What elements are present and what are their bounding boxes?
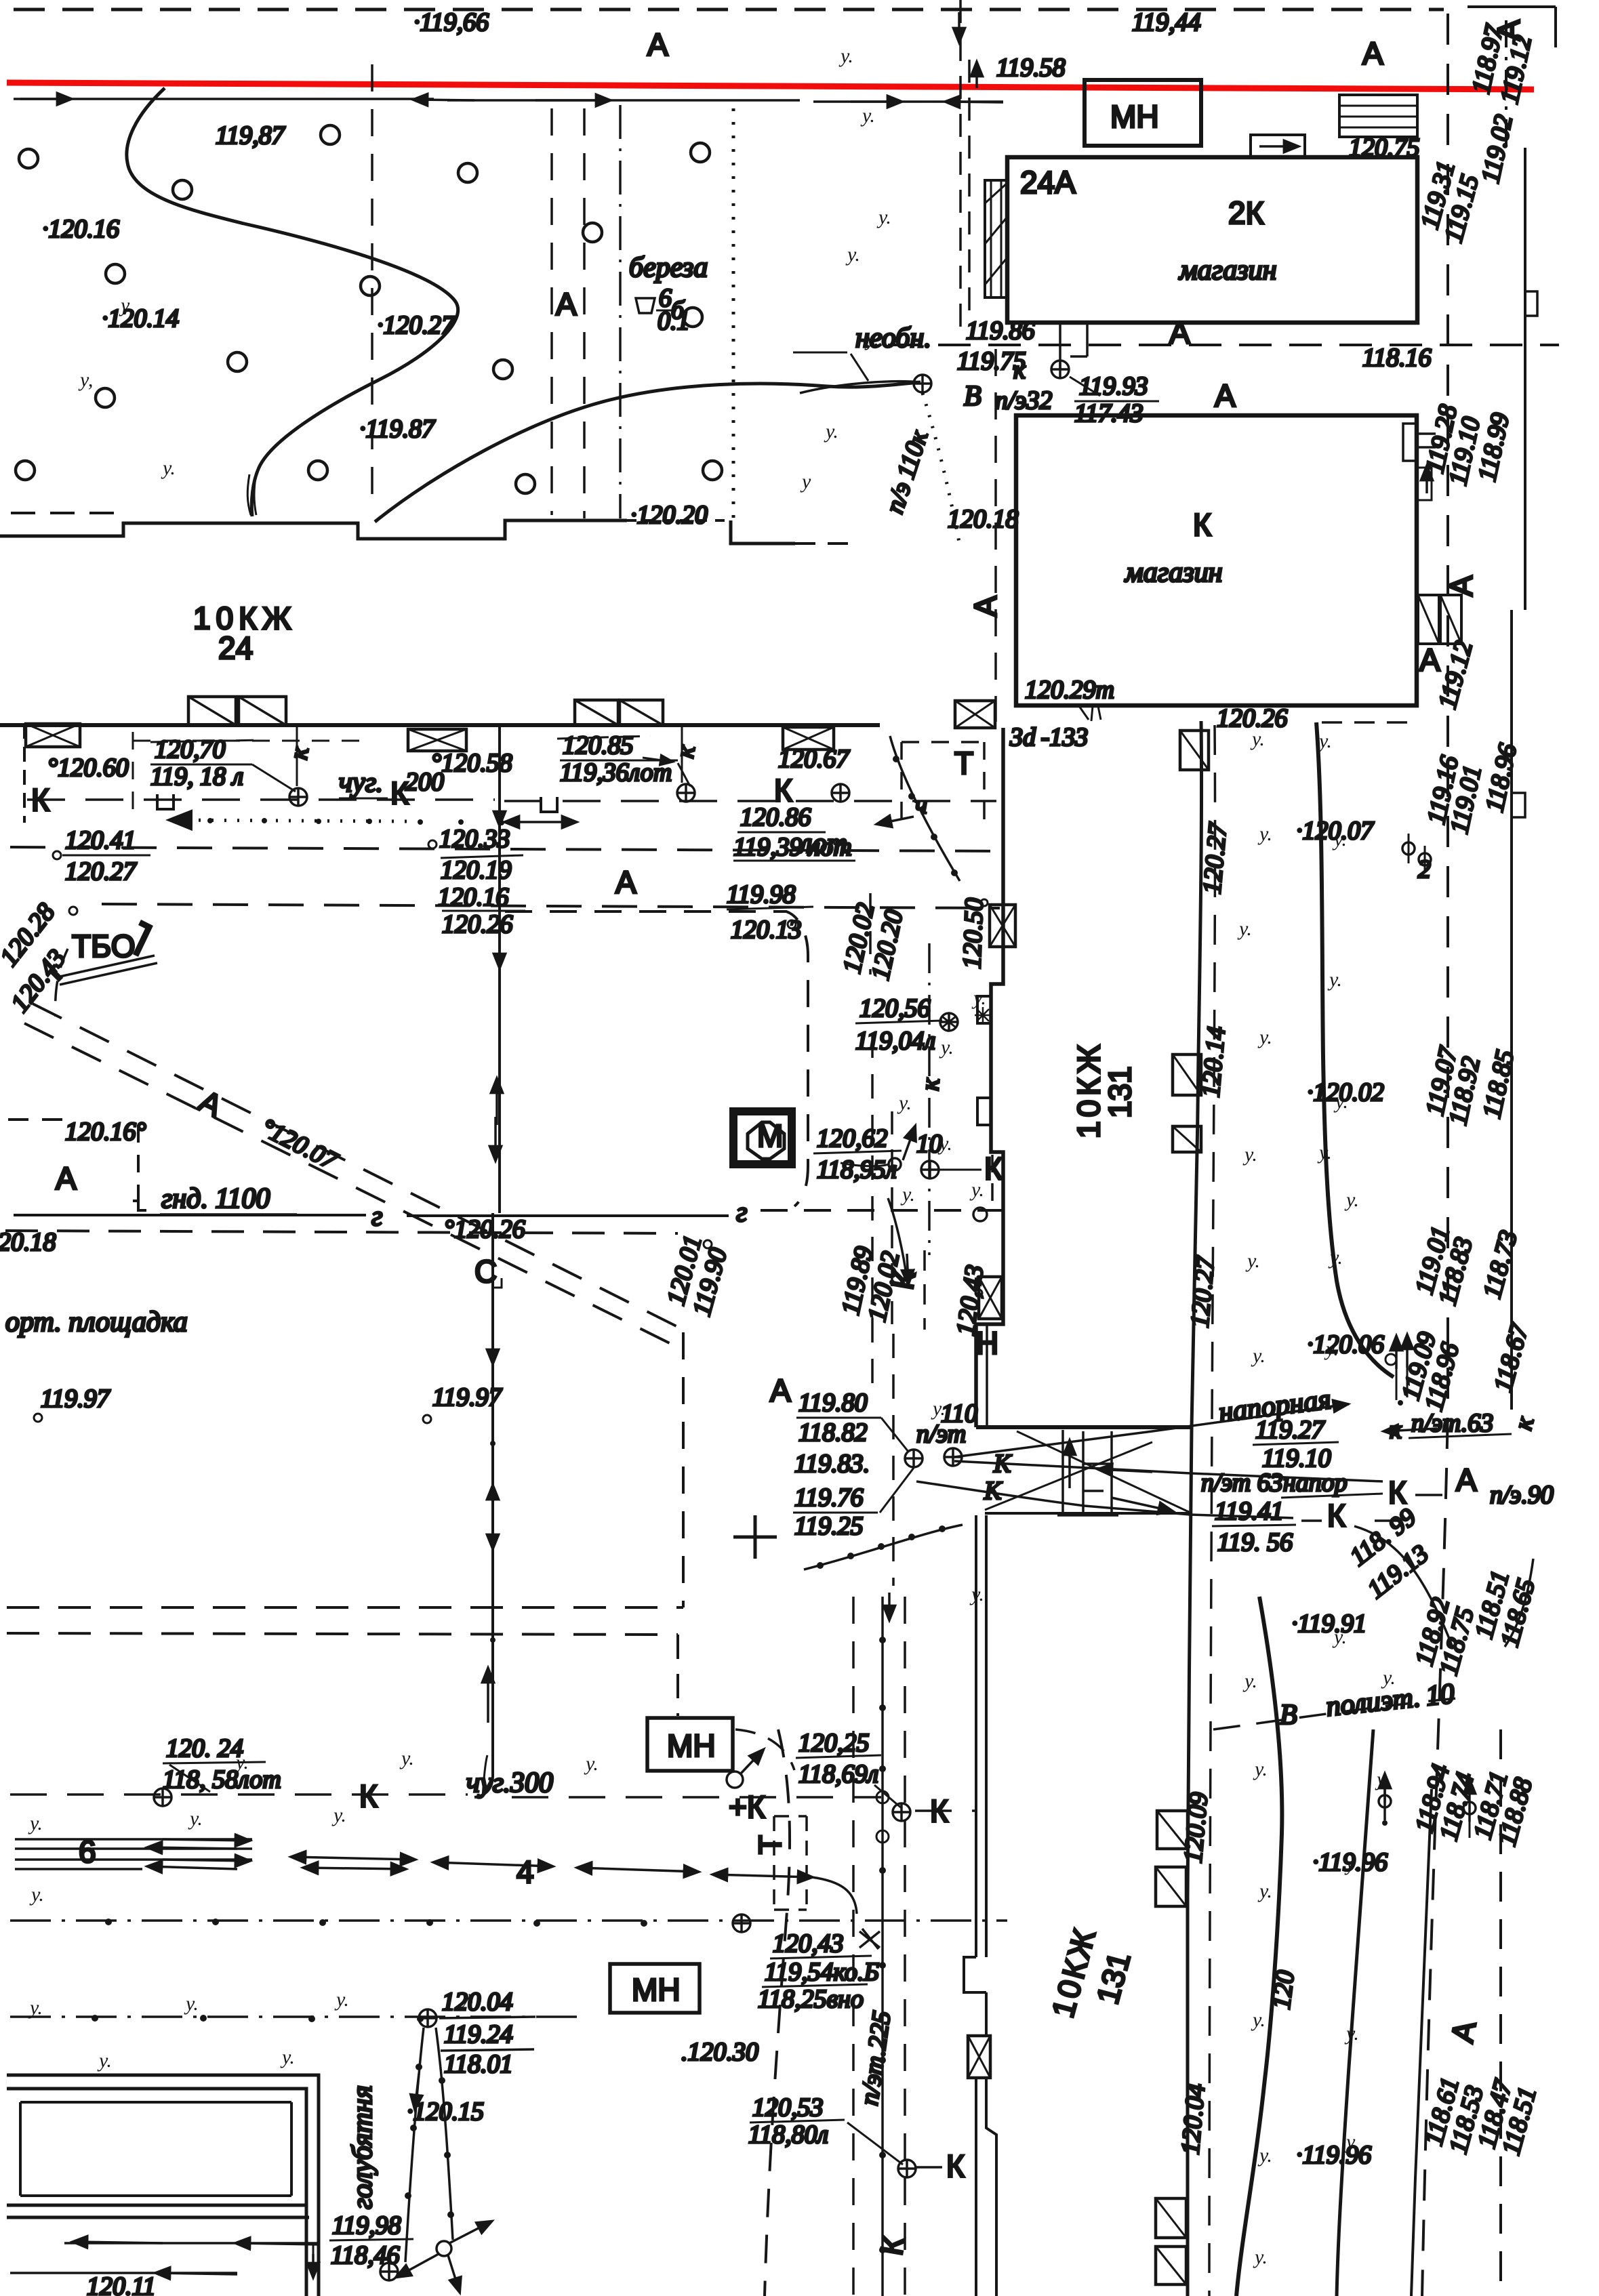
svg-text:магазин: магазин (1178, 255, 1276, 286)
svg-text:119,98: 119,98 (332, 2211, 401, 2240)
svg-text:у.: у. (1333, 1090, 1348, 1113)
svg-text:у.: у. (1257, 1880, 1272, 1902)
svg-text:у.: у. (969, 1583, 984, 1605)
svg-text:120.18: 120.18 (948, 505, 1019, 533)
svg-text:у.: у. (1257, 1026, 1272, 1048)
svg-text:у.: у. (331, 1804, 346, 1826)
svg-text:119.98: 119.98 (727, 880, 796, 909)
svg-text:у.: у. (860, 104, 875, 127)
svg-text:г: г (736, 1197, 747, 1228)
svg-text:у.: у. (864, 328, 879, 350)
svg-text:у.: у. (1242, 1670, 1257, 1692)
svg-text:120.41: 120.41 (65, 826, 136, 855)
svg-text:лот: лот (798, 828, 847, 859)
svg-text:МН: МН (667, 1728, 716, 1763)
svg-text:К: К (390, 775, 409, 811)
svg-text:к: к (1013, 356, 1026, 384)
svg-text:орт. площадка: орт. площадка (5, 1307, 188, 1338)
svg-text:118,95л: 118,95л (817, 1155, 897, 1184)
svg-text:2К: 2К (1228, 195, 1264, 230)
svg-text:у.: у. (845, 243, 860, 266)
svg-text:у.: у. (1381, 1666, 1396, 1689)
svg-text:131: 131 (1102, 1066, 1137, 1118)
svg-text:ТБО: ТБО (72, 928, 136, 964)
svg-text:у.: у. (939, 1036, 954, 1059)
svg-text:у.: у. (937, 1132, 952, 1155)
svg-text:120.67: 120.67 (778, 745, 851, 773)
svg-text:К: К (984, 1477, 1003, 1505)
svg-text:К: К (993, 1450, 1012, 1478)
svg-text:120.04: 120.04 (442, 1988, 513, 2016)
svg-text:120,70: 120,70 (155, 735, 226, 764)
svg-text:120.11: 120.11 (87, 2272, 156, 2296)
svg-text:магазин: магазин (1124, 557, 1222, 588)
svg-text:у.: у. (188, 1807, 203, 1830)
svg-text:К: К (359, 1778, 378, 1813)
svg-text:у.: у. (1237, 918, 1252, 940)
svg-text:110: 110 (941, 1399, 977, 1428)
svg-text:п/эт 63напор: п/эт 63напор (1201, 1469, 1348, 1497)
svg-text:·120.16: ·120.16 (42, 215, 119, 243)
svg-text:·119.96: ·119.96 (1296, 2141, 1371, 2169)
svg-text:голубятня: голубятня (347, 2085, 378, 2209)
svg-text:С: С (474, 1254, 497, 1289)
svg-text:К: К (946, 2148, 965, 2184)
svg-text:А: А (1491, 20, 1526, 41)
svg-text:у.: у. (460, 1986, 474, 2008)
svg-text:у.: у. (584, 1752, 599, 1775)
svg-text:118,25вно: 118,25вно (758, 1985, 864, 2013)
svg-text:А: А (56, 1161, 77, 1196)
svg-text:120.19: 120.19 (441, 856, 512, 884)
svg-text:у.: у. (897, 1092, 912, 1114)
svg-text:119.27: 119.27 (1255, 1416, 1326, 1444)
svg-text:120.16: 120.16 (438, 883, 509, 911)
svg-text:у.: у. (1344, 1853, 1359, 1875)
svg-text:120.18: 120.18 (0, 1228, 56, 1256)
svg-text:чуг.300: чуг.300 (466, 1767, 553, 1799)
svg-text:119.24: 119.24 (444, 2020, 513, 2049)
svg-text:М: М (757, 1118, 783, 1153)
svg-text:у.: у. (838, 45, 853, 67)
svg-text:г: г (371, 1201, 382, 1232)
svg-text:119. 56: 119. 56 (1217, 1528, 1293, 1557)
svg-text:119.76: 119.76 (794, 1483, 864, 1512)
svg-text:у.: у. (1324, 1338, 1339, 1360)
svg-text:·120.14: ·120.14 (102, 304, 179, 333)
svg-text:у: у (800, 470, 811, 493)
svg-text:у.: у. (1344, 1189, 1359, 1211)
svg-text:119,44: 119,44 (1132, 8, 1201, 37)
svg-text:у.: у. (334, 1988, 349, 2011)
svg-text:МН: МН (632, 1972, 681, 2007)
svg-text:у.: у. (1375, 1768, 1390, 1790)
svg-text:у.: у. (1344, 2131, 1359, 2153)
svg-text:118.16: 118.16 (1362, 344, 1432, 372)
svg-text:Т: Т (752, 1835, 788, 1854)
svg-text:у.: у. (1257, 2144, 1272, 2167)
svg-text:у.: у. (1251, 1345, 1266, 1367)
svg-text:.120.30: .120.30 (681, 2038, 758, 2066)
svg-text:у.: у. (29, 1883, 44, 1906)
svg-text:119,54ко.Б: 119,54ко.Б (765, 1958, 879, 1986)
svg-text:6: 6 (79, 1834, 96, 1869)
svg-text:120.33: 120.33 (439, 825, 510, 853)
svg-text:МН: МН (1110, 99, 1159, 134)
svg-text:А: А (615, 865, 636, 900)
svg-text:у.: у. (399, 1747, 414, 1769)
svg-text:А: А (1444, 575, 1479, 596)
svg-text:у.: у. (1317, 1141, 1332, 1164)
svg-text:·120.20: ·120.20 (630, 501, 708, 529)
svg-text:А: А (1169, 315, 1190, 350)
svg-text:К: К (1327, 1498, 1345, 1533)
svg-text:у.: у. (824, 420, 838, 443)
svg-text:В: В (1280, 1700, 1297, 1731)
svg-text:у.: у. (28, 1996, 43, 2019)
svg-text:2: 2 (1418, 855, 1431, 884)
svg-text:К: К (31, 782, 49, 817)
svg-text:А: А (556, 287, 577, 322)
svg-text:у.: у. (1253, 2246, 1268, 2268)
svg-text:А: А (1456, 1462, 1477, 1498)
svg-text:118, 58лот: 118, 58лот (163, 1765, 281, 1794)
svg-text:п/эт.63: п/эт.63 (1411, 1409, 1493, 1437)
svg-text:·119.87: ·119.87 (359, 415, 436, 443)
svg-text:°120.60: °120.60 (47, 754, 129, 782)
svg-text:4: 4 (517, 1854, 534, 1889)
svg-text:119,87: 119,87 (216, 121, 286, 150)
svg-text:у.: у. (1245, 1250, 1260, 1272)
svg-text:24А: 24А (1020, 165, 1076, 200)
svg-text:к: к (1390, 1416, 1402, 1444)
svg-text:120,43: 120,43 (773, 1929, 844, 1958)
svg-text:п/э32: п/э32 (995, 386, 1052, 415)
svg-text:гнд. 1100: гнд. 1100 (161, 1183, 270, 1214)
svg-text:у.: у. (97, 2049, 112, 2072)
svg-text:у.: у. (28, 1812, 43, 1834)
svg-text:у.: у. (1327, 968, 1342, 991)
svg-text:у.: у. (119, 294, 134, 316)
svg-text:у.: у. (1317, 730, 1332, 752)
svg-text:К: К (1193, 507, 1211, 542)
svg-text:120.86: 120.86 (740, 803, 811, 832)
svg-text:у.: у. (161, 457, 176, 479)
svg-text:у.: у. (184, 1992, 199, 2015)
svg-text:у.: у. (971, 987, 986, 1009)
svg-text:б: б (671, 296, 685, 325)
svg-text:120.50: 120.50 (958, 897, 989, 969)
svg-text:у.: у. (1328, 1246, 1343, 1269)
svg-text:у.: у. (876, 206, 891, 228)
svg-text:24: 24 (218, 630, 253, 665)
svg-text:у.: у. (234, 1751, 249, 1774)
svg-text:119.97: 119.97 (41, 1385, 111, 1413)
svg-text:у.: у. (900, 1183, 915, 1206)
svg-text:119.41: 119.41 (1215, 1497, 1284, 1525)
svg-text:118.82: 118.82 (798, 1418, 868, 1447)
svg-text:120.29т: 120.29т (1025, 676, 1114, 704)
svg-text:п/э.90: п/э.90 (1490, 1481, 1554, 1509)
svg-text:+К: +К (729, 1789, 765, 1824)
svg-text:120.16°: 120.16° (65, 1118, 146, 1146)
svg-text:°120.26: °120.26 (444, 1215, 525, 1244)
svg-text:у.: у. (1250, 728, 1265, 750)
svg-text:у.: у. (931, 1397, 946, 1420)
svg-text:чуг.: чуг. (339, 767, 383, 798)
svg-text:у.: у. (1251, 2009, 1266, 2031)
svg-text:118,69л: 118,69л (798, 1760, 878, 1788)
svg-text:А: А (1215, 378, 1236, 413)
svg-text:береза: береза (629, 252, 708, 283)
svg-text:119.83.: 119.83. (794, 1450, 870, 1478)
svg-text:119.93: 119.93 (1079, 372, 1148, 401)
svg-text:120.27: 120.27 (65, 857, 138, 886)
svg-text:119.58: 119.58 (996, 54, 1066, 82)
svg-text:120,56: 120,56 (859, 994, 931, 1023)
svg-text:у,: у, (78, 369, 93, 391)
svg-text:120. 24: 120. 24 (166, 1734, 243, 1763)
svg-text:А: А (770, 1373, 791, 1408)
svg-text:119, 18 л: 119, 18 л (150, 762, 243, 791)
svg-text:·119.91: ·119.91 (1291, 1610, 1367, 1638)
svg-text:10КЖ: 10КЖ (1071, 1041, 1106, 1139)
svg-text:у.: у. (280, 2046, 295, 2068)
svg-text:119,36лот: 119,36лот (560, 758, 672, 787)
svg-text:118,80л: 118,80л (748, 2120, 828, 2149)
svg-text:у.: у. (1344, 2022, 1359, 2045)
svg-text:·120.06: ·120.06 (1307, 1330, 1384, 1359)
svg-text:у.: у. (1257, 823, 1272, 845)
svg-text:А: А (1419, 642, 1440, 678)
svg-text:Н: Н (976, 1326, 998, 1361)
svg-text:·119,66: ·119,66 (413, 8, 489, 37)
svg-text:у.: у. (1242, 1143, 1257, 1166)
svg-text:у.: у. (1332, 828, 1347, 850)
svg-text:120.26: 120.26 (442, 910, 513, 939)
svg-text:·120.27: ·120.27 (377, 311, 456, 340)
svg-text:119.86: 119.86 (966, 316, 1035, 345)
svg-text:120,53: 120,53 (752, 2093, 824, 2122)
svg-text:у.: у. (1253, 1758, 1268, 1780)
svg-text:А: А (647, 27, 668, 62)
svg-text:119,04л: 119,04л (855, 1027, 935, 1055)
svg-text:А: А (1362, 36, 1383, 71)
svg-text:у.: у. (969, 1178, 984, 1201)
svg-text:119.80: 119.80 (798, 1389, 868, 1417)
svg-text:В: В (964, 381, 981, 412)
svg-text:120: 120 (1267, 1969, 1300, 2011)
svg-text:А: А (968, 596, 1003, 617)
svg-text:120.85: 120.85 (563, 731, 634, 760)
svg-text:120,25: 120,25 (798, 1729, 870, 1757)
svg-text:3d -133: 3d -133 (1009, 723, 1088, 752)
svg-text:у.: у. (1332, 1626, 1347, 1648)
svg-text:119.25: 119.25 (794, 1512, 864, 1540)
svg-text:К: К (930, 1793, 948, 1828)
svg-text:118.01: 118.01 (444, 2050, 513, 2078)
svg-text:ч: ч (915, 791, 927, 819)
svg-text:120,62: 120,62 (817, 1124, 888, 1153)
svg-text:Т: Т (954, 745, 973, 781)
